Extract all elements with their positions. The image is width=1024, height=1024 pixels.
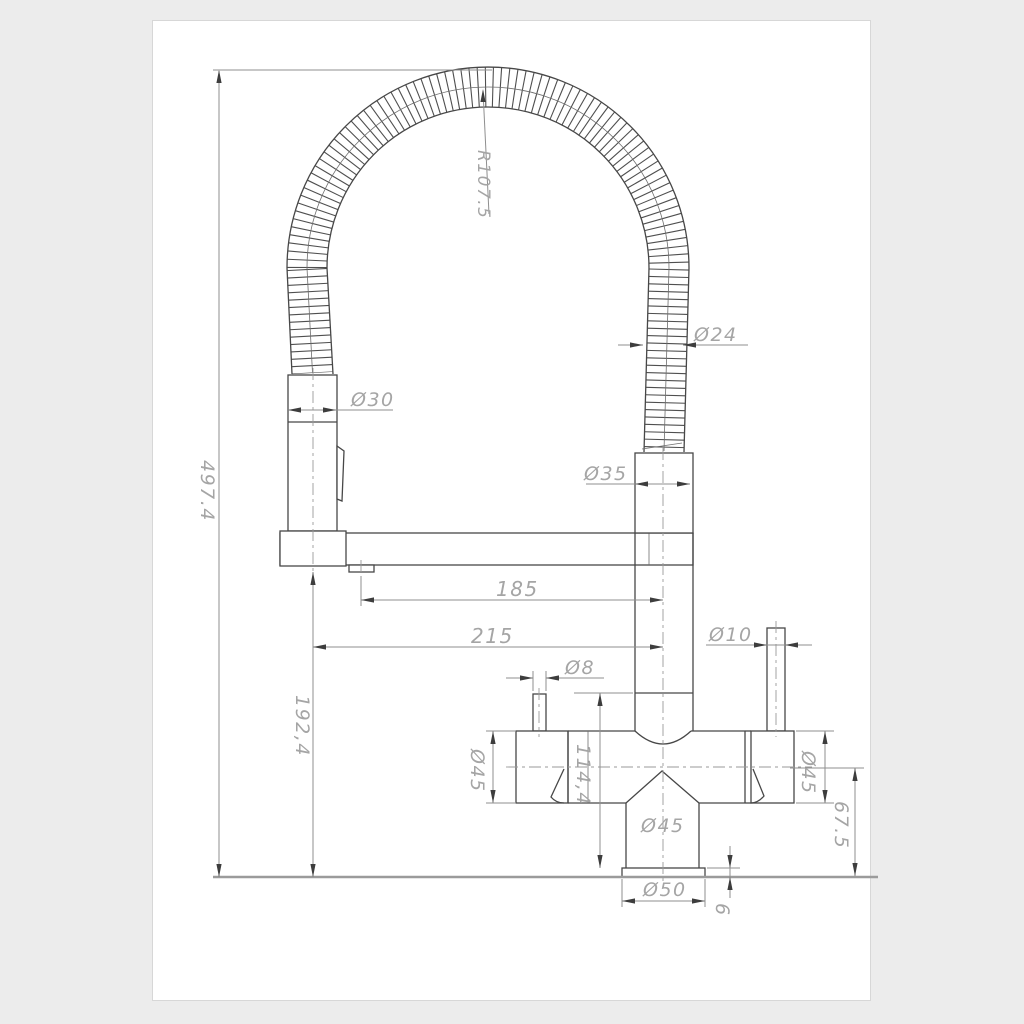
dim-spout-reach: 185 xyxy=(496,577,539,601)
dim-left-pin-diameter: Ø8 xyxy=(564,657,595,679)
dim-right-handle-diameter: Ø45 xyxy=(797,750,819,795)
dim-connector-diameter: Ø35 xyxy=(583,463,628,485)
faucet-technical-drawing: R107.5 497.4 192,4 114,4 Ø45 Ø45 67.5 6 … xyxy=(0,0,1024,1024)
dim-base-height: 6 xyxy=(711,903,733,917)
base-plate xyxy=(622,868,705,877)
dim-total-height: 497.4 xyxy=(196,460,218,522)
spray-trigger xyxy=(337,446,344,501)
dim-sprayer-diameter: Ø30 xyxy=(350,389,395,411)
dim-bend-radius: R107.5 xyxy=(473,150,493,219)
dim-body-column-height: 114,4 xyxy=(572,744,594,806)
dim-lower-body-diameter: Ø45 xyxy=(640,815,685,837)
dim-outlet-height: 192,4 xyxy=(291,695,313,757)
dim-left-handle-diameter: Ø45 xyxy=(466,748,488,793)
left-handle-pin xyxy=(533,694,546,731)
flexible-hose xyxy=(287,67,689,452)
dim-right-pin-diameter: Ø10 xyxy=(708,624,753,646)
hose-connector xyxy=(635,443,693,533)
body-cone xyxy=(626,771,699,803)
spray-head xyxy=(288,375,344,531)
dim-hose-diameter: Ø24 xyxy=(693,324,738,346)
outlet-notch xyxy=(349,565,374,572)
dim-spout-center-height: 67.5 xyxy=(830,801,852,849)
spout-bar xyxy=(280,531,693,572)
dim-base-diameter: Ø50 xyxy=(642,879,687,901)
spray-head-body xyxy=(288,375,337,531)
dim-overall-reach: 215 xyxy=(471,624,514,648)
